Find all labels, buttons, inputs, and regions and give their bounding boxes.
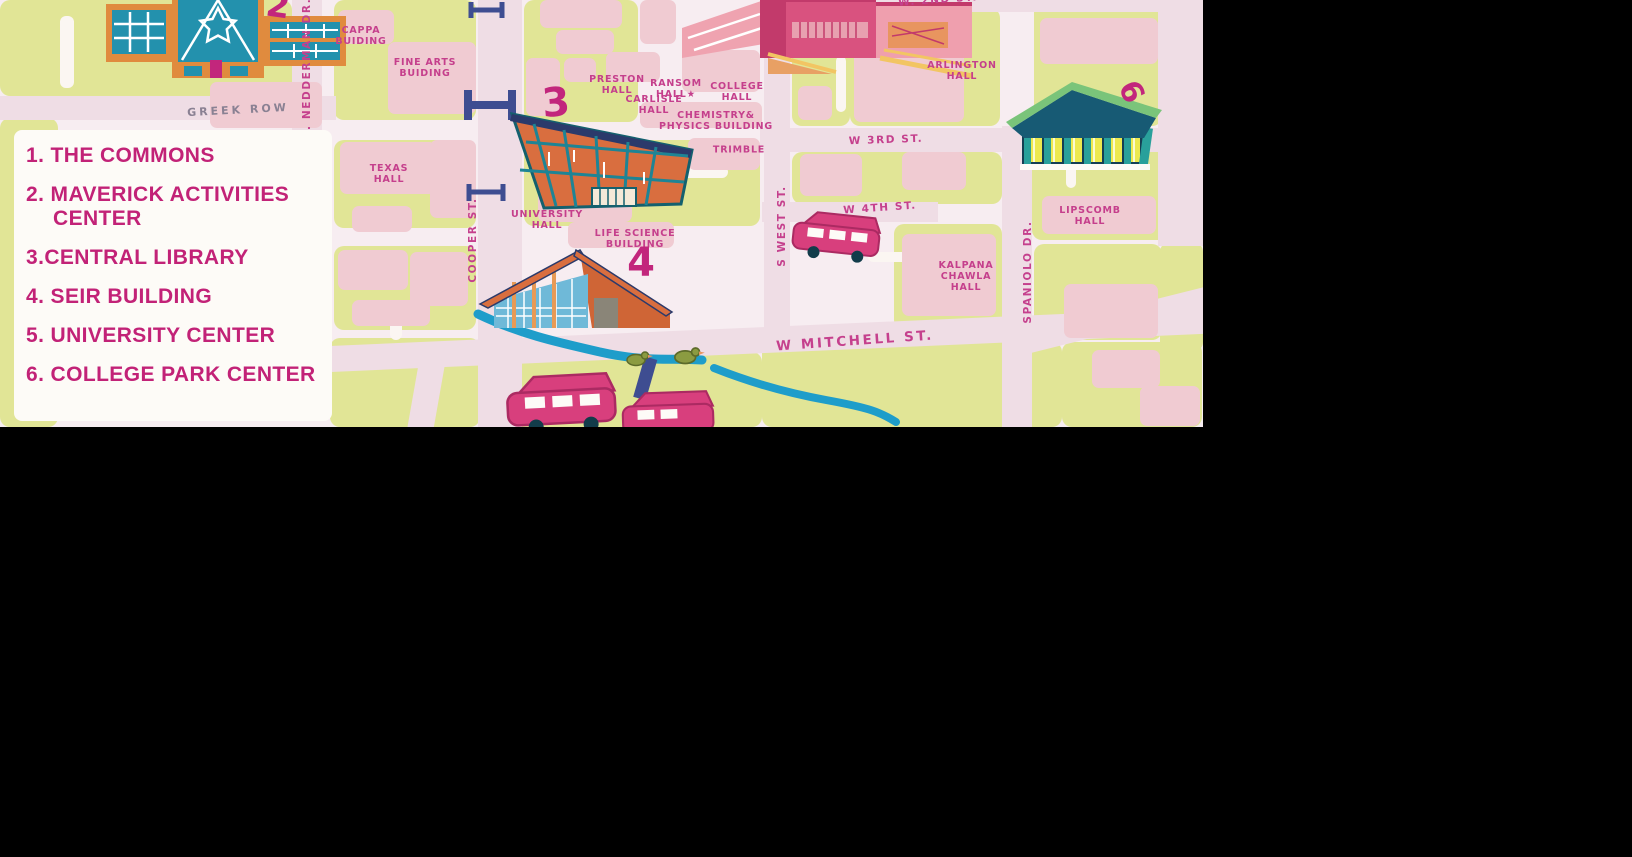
building-label: CHEMISTRY& PHYSICS BUILDING (659, 110, 773, 132)
building-label: FINE ARTS BUIDING (394, 57, 457, 79)
pedestrian-bridge-icon (468, 2, 512, 201)
building-label: TEXAS HALL (370, 163, 409, 185)
building-label: KALPANA CHAWLA HALL (938, 260, 993, 294)
legend-item: 6. COLLEGE PARK CENTER (26, 363, 322, 387)
map-legend: 1. THE COMMONS2. MAVERICK ACTIVITIES CEN… (14, 130, 332, 421)
campus-map: GREEK ROWW. NEDDERMAN DR.COOPER ST.W 3RD… (0, 0, 1203, 427)
building-number: 3 (540, 79, 572, 127)
street-label: S WEST ST. (776, 185, 788, 266)
legend-item: 3.CENTRAL LIBRARY (26, 246, 322, 270)
legend-item: 5. UNIVERSITY CENTER (26, 324, 322, 348)
building-label: COLLEGE HALL (710, 81, 764, 103)
shuttle-bus (791, 210, 881, 265)
building-label: LIPSCOMB HALL (1059, 205, 1121, 227)
screen: { "canvas": {"width": 1632, "height": 85… (0, 0, 1632, 857)
building-label: ARLINGTON HALL (927, 60, 997, 82)
building-number: 4 (627, 240, 655, 286)
street-label: SPANIOLO DR. (1022, 220, 1034, 323)
building-label: CAPPA BUIDING (335, 25, 386, 47)
legend-item: 1. THE COMMONS (26, 144, 322, 168)
building-label: TRIMBLE (713, 144, 765, 155)
legend-item: 2. MAVERICK ACTIVITIES CENTER (26, 183, 322, 231)
street-label: COOPER ST. (467, 197, 479, 282)
shuttle-bus (506, 373, 616, 427)
legend-list: 1. THE COMMONS2. MAVERICK ACTIVITIES CEN… (26, 144, 322, 387)
building-label: UNIVERSITY HALL (511, 209, 583, 231)
legend-item: 4. SEIR BUILDING (26, 285, 322, 309)
street-label: W. NEDDERMAN DR. (301, 0, 313, 142)
